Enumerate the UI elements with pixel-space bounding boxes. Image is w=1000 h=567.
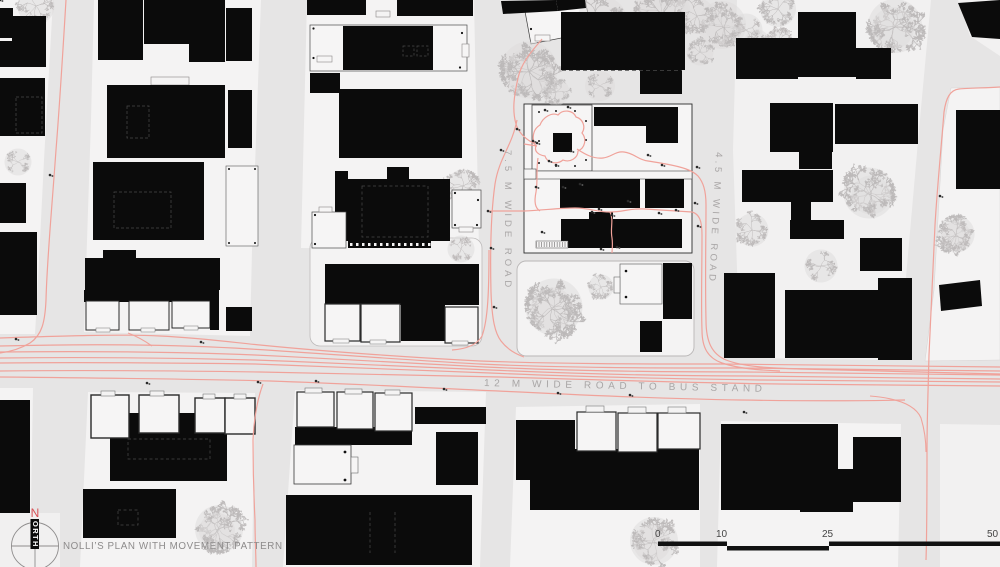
svg-text:50: 50 bbox=[987, 529, 999, 540]
svg-text:25: 25 bbox=[822, 529, 834, 540]
svg-text:7.5 M WIDE ROAD: 7.5 M WIDE ROAD bbox=[502, 150, 513, 291]
svg-text:0: 0 bbox=[655, 529, 661, 540]
svg-text:NOLLI’S PLAN WITH MOVEMENT PAT: NOLLI’S PLAN WITH MOVEMENT PATTERN bbox=[63, 541, 283, 552]
svg-text:ORTH: ORTH bbox=[31, 521, 40, 548]
svg-text:10: 10 bbox=[716, 529, 728, 540]
svg-text:N: N bbox=[31, 506, 40, 520]
